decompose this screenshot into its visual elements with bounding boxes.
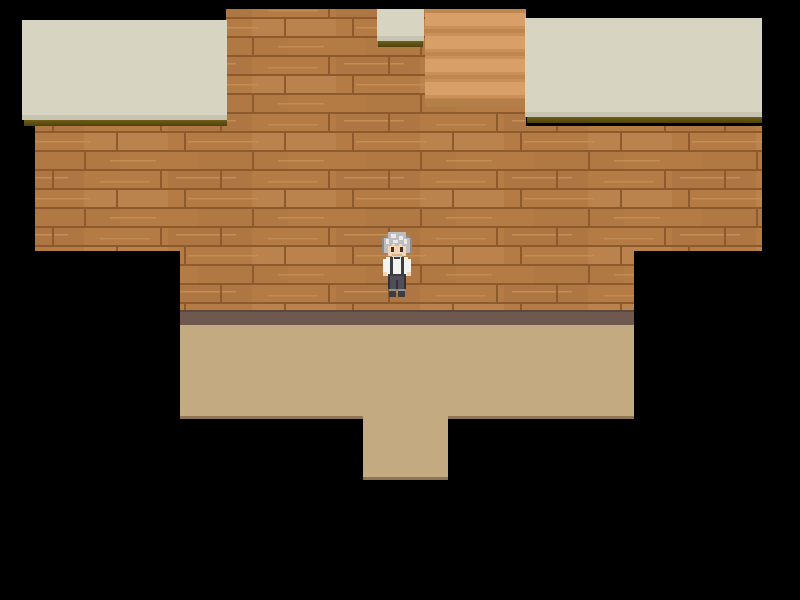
character-sprite <box>379 232 415 298</box>
roof-ledge-small <box>377 9 424 41</box>
ledge-right-shadow <box>527 117 762 123</box>
ledge-small-shadow <box>378 41 423 47</box>
roof-ledge-left <box>22 20 227 120</box>
player-character <box>379 232 415 298</box>
roof-ledge-right <box>525 18 762 117</box>
ledge-left-shadow <box>24 120 227 126</box>
game-viewport[interactable] <box>0 0 800 600</box>
baseboard-strip <box>180 310 634 325</box>
floor-exit-south[interactable] <box>363 416 448 480</box>
staircase[interactable] <box>425 9 526 107</box>
floor-main[interactable] <box>180 325 634 419</box>
